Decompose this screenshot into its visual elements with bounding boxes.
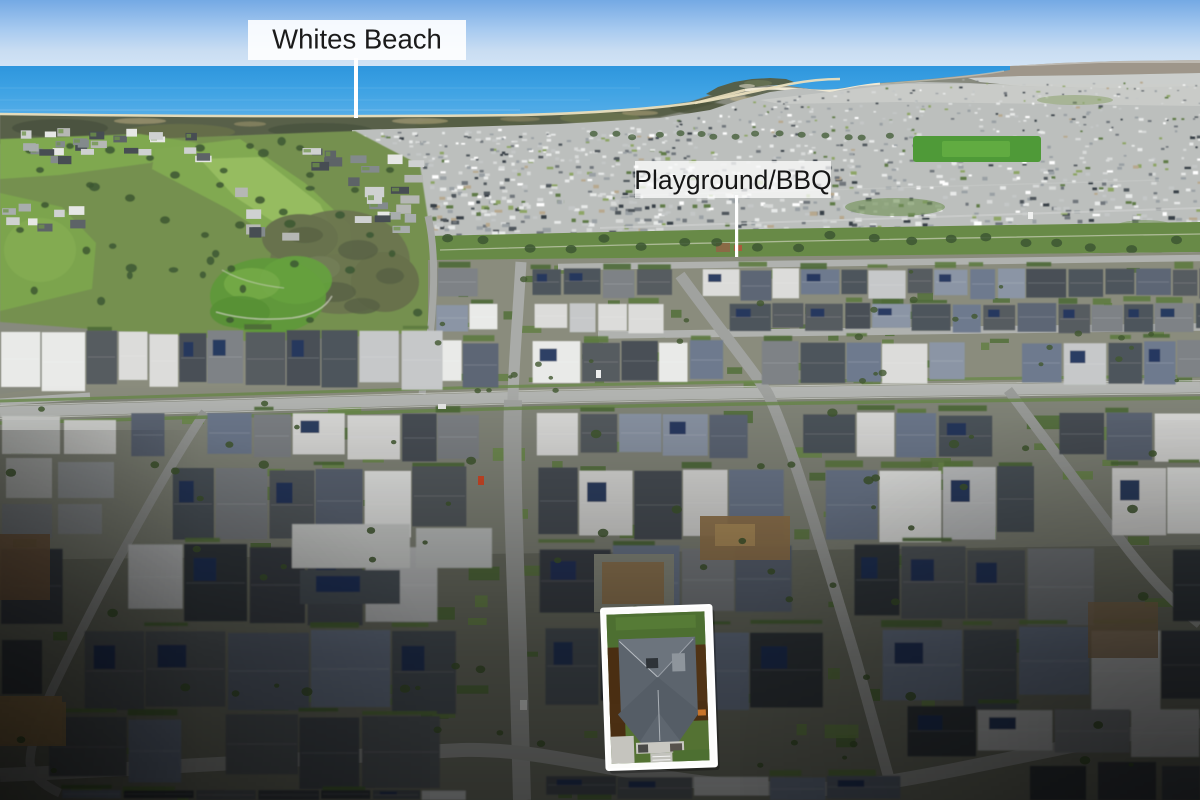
svg-text:Whites Beach: Whites Beach [272,24,442,55]
svg-text:Playground/BBQ: Playground/BBQ [634,165,831,195]
